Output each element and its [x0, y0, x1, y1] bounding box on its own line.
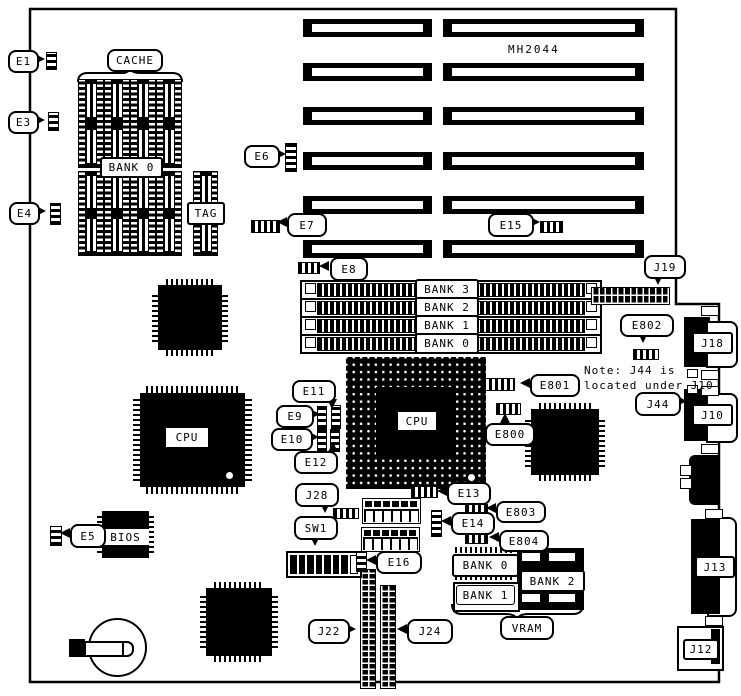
vram-bank0-label: BANK 0 [452, 554, 519, 577]
connector-j24 [380, 585, 396, 689]
jumper-e801 [482, 378, 515, 391]
header-block [361, 527, 420, 552]
jumper-label-e11: E11 [292, 380, 336, 403]
isa-slot [443, 240, 644, 258]
cache-chip [78, 79, 104, 168]
jumper-label-e8: E8 [330, 257, 368, 281]
connector-j22 [360, 569, 376, 689]
vram-label: VRAM [500, 616, 554, 640]
jumper-label-e801: E801 [530, 374, 580, 397]
cache-chip [130, 79, 156, 168]
pointer [437, 486, 447, 496]
jumper-e1 [46, 52, 57, 70]
cache-chip [156, 79, 182, 168]
jumper-label-e14: E14 [451, 512, 495, 535]
note-line1: Note: J44 is [584, 364, 675, 377]
pointer [441, 516, 451, 526]
motherboard-diagram: MH2044 E1 E3 E4 CACHE BANK 0 TAG E6 E7 E… [0, 0, 741, 696]
connector-label-j18: J18 [692, 332, 733, 354]
isa-slot [443, 107, 644, 125]
din-connector [689, 455, 720, 505]
pointer [366, 555, 376, 565]
jumper-e802 [633, 349, 659, 360]
jumper-e8 [298, 262, 320, 274]
cache-chip [78, 171, 104, 256]
battery-clip [84, 641, 134, 657]
switch-label-sw1: SW1 [294, 516, 338, 540]
connector-label-j10: J10 [692, 404, 733, 426]
jumper-label-e16: E16 [376, 551, 422, 574]
connector-label-j19: J19 [644, 255, 686, 279]
pointer [277, 217, 287, 227]
board-model: MH2044 [508, 43, 560, 56]
header-block [362, 498, 421, 524]
jack-screw [705, 509, 723, 519]
jumper-label-e12: E12 [294, 451, 338, 474]
jumper-label-e4: E4 [9, 202, 40, 225]
cache-label: CACHE [107, 49, 163, 72]
connector-label-j22: J22 [308, 619, 350, 644]
isa-slot [303, 240, 432, 258]
jumper-label-e7: E7 [287, 213, 327, 237]
connector-j19 [591, 287, 670, 305]
isa-slot [303, 107, 432, 125]
jumper-label-e3: E3 [8, 111, 39, 134]
pointer [520, 378, 530, 388]
isa-slot [303, 196, 432, 214]
jumper-j28 [333, 508, 359, 519]
cache-chip [130, 171, 156, 256]
jumper-e4 [50, 203, 61, 225]
connector-label-j28: J28 [295, 483, 339, 507]
cache-chip [104, 171, 130, 256]
jumper-label-e804: E804 [499, 530, 549, 552]
jack-screw [705, 616, 723, 626]
pin1-dot [226, 472, 233, 479]
din-tab [680, 478, 692, 489]
isa-slot [303, 19, 432, 37]
jack-screw [701, 306, 719, 316]
cache-chip [104, 79, 130, 168]
jumper-label-e1: E1 [8, 50, 39, 73]
connector-label-j12: J12 [683, 639, 719, 660]
connector-label-j44: J44 [635, 392, 681, 416]
jumper-e6 [285, 143, 297, 172]
cache-chip [156, 171, 182, 256]
jumper-label-e15: E15 [488, 213, 534, 237]
jumper-label-e13: E13 [447, 482, 491, 505]
jumper-label-e5: E5 [70, 524, 106, 548]
qfp-chip [531, 409, 599, 475]
jumper-label-e800: E800 [485, 423, 535, 446]
tag-label: TAG [187, 202, 225, 225]
cpu-chip-label: CPU [165, 427, 209, 448]
isa-slot [443, 196, 644, 214]
isa-slot [443, 152, 644, 170]
jumper-label-e803: E803 [496, 501, 546, 523]
jumper-e13 [411, 486, 438, 498]
connector-label-j13: J13 [695, 556, 735, 578]
simm-bank0-label: BANK 0 [415, 333, 479, 354]
qfp-chip [206, 588, 272, 656]
isa-slot [443, 19, 644, 37]
jumper-e15 [540, 221, 563, 233]
isa-slot [303, 152, 432, 170]
isa-slot [303, 63, 432, 81]
jack-screw [701, 444, 719, 454]
din-tab [680, 465, 692, 476]
battery-clip-end [69, 639, 85, 657]
pointer [500, 413, 510, 423]
jumper-e3 [48, 112, 59, 131]
jumper-e7 [251, 220, 280, 233]
vram-bank1-label: BANK 1 [456, 585, 515, 605]
jack-screw [687, 369, 698, 378]
jumper-label-e10: E10 [271, 428, 313, 451]
jumper-label-e9: E9 [276, 405, 314, 428]
note-line2: located under J10 [584, 379, 714, 392]
qfp-chip [158, 285, 222, 350]
jumper-label-e6: E6 [244, 145, 280, 168]
pin1-dot [468, 474, 475, 481]
jumper-label-e802: E802 [620, 314, 674, 337]
connector-label-j24: J24 [407, 619, 453, 644]
pointer [60, 528, 70, 538]
cache-bank0-label: BANK 0 [100, 157, 163, 178]
isa-slot [443, 63, 644, 81]
pointer [319, 261, 329, 271]
vram-bank2-label: BANK 2 [520, 570, 585, 592]
cpu-socket-label: CPU [397, 411, 437, 431]
dip-switch-sw1 [286, 551, 362, 578]
pointer [397, 624, 407, 634]
bios-label: BIOS [102, 527, 149, 547]
